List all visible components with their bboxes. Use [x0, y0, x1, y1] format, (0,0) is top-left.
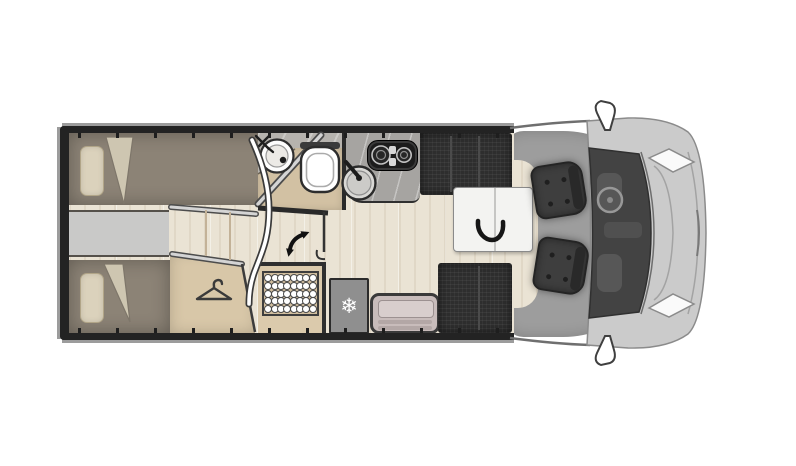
cushion-seam: [450, 136, 452, 192]
chair-button: [544, 179, 550, 185]
headlight-top: [649, 149, 694, 172]
dinette-bench-rear: [420, 133, 512, 195]
bathroom: [258, 133, 346, 210]
table-leaf-divider: [494, 188, 496, 251]
cushion-seam: [478, 266, 480, 330]
chair-backrest: [567, 165, 584, 210]
headlight-bottom: [649, 294, 694, 317]
mat-dot: [309, 274, 317, 282]
dinette-bench-front: [438, 263, 512, 333]
entry-bench-slat: [378, 326, 432, 330]
floorplan-canvas: ❄: [0, 0, 796, 466]
mat-dot: [309, 282, 317, 290]
chair-button: [548, 201, 554, 207]
pillow-top-bed: [80, 146, 104, 196]
chair-button: [566, 255, 572, 261]
chair-button: [546, 274, 552, 280]
chair-button: [561, 177, 567, 183]
stove: [367, 140, 418, 171]
fridge: ❄: [329, 278, 369, 334]
entry-bench-slat: [378, 320, 432, 324]
entry-bench-cushion: [378, 300, 434, 318]
outer-trim-bottom: [62, 339, 514, 343]
bedroom-center-aisle: [69, 210, 169, 257]
dinette-table: [453, 187, 533, 252]
cushion-seam: [478, 136, 480, 192]
mat-dot: [309, 305, 317, 313]
entry-bench: [370, 293, 440, 334]
shower-mat: [262, 271, 319, 316]
wing-mirror-bottom: [596, 336, 615, 365]
chair-backrest: [569, 246, 586, 291]
swivel-chair-driver: [529, 159, 589, 220]
wing-mirror-top: [596, 101, 615, 130]
swivel-chair-passenger: [531, 235, 591, 296]
chair-button: [563, 277, 569, 283]
snowflake-icon: ❄: [340, 296, 358, 317]
mat-dot: [309, 297, 317, 305]
chair-button: [549, 252, 555, 258]
outer-trim-rear: [57, 127, 61, 339]
pillow-bottom-bed: [80, 273, 104, 323]
bathroom-counter: [258, 148, 342, 210]
outer-trim-top: [62, 123, 514, 127]
chair-button: [565, 198, 571, 204]
